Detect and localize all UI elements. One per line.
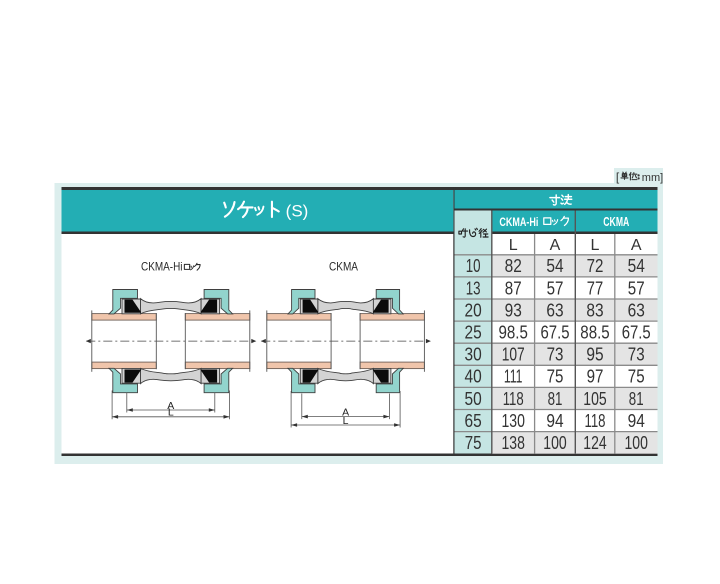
svg-text:72: 72 bbox=[587, 256, 604, 276]
svg-text:94: 94 bbox=[546, 411, 563, 431]
svg-text:124: 124 bbox=[583, 433, 606, 453]
svg-text:138: 138 bbox=[502, 433, 525, 453]
svg-text:CKMA-Hi: CKMA-Hi bbox=[499, 215, 538, 229]
svg-text:20: 20 bbox=[465, 300, 482, 320]
svg-text:73: 73 bbox=[628, 345, 645, 365]
svg-text:63: 63 bbox=[546, 300, 563, 320]
svg-text:88.5: 88.5 bbox=[580, 323, 609, 343]
svg-text:100: 100 bbox=[625, 433, 648, 453]
svg-text:65: 65 bbox=[465, 411, 482, 431]
svg-text:95: 95 bbox=[586, 345, 603, 365]
svg-text:87: 87 bbox=[505, 278, 522, 298]
svg-text:83: 83 bbox=[586, 300, 603, 320]
svg-text:63: 63 bbox=[628, 300, 645, 320]
svg-text:L: L bbox=[343, 415, 349, 427]
svg-text:CKMA: CKMA bbox=[603, 215, 629, 229]
svg-text:A: A bbox=[550, 237, 561, 254]
svg-text:57: 57 bbox=[628, 278, 645, 298]
svg-text:100: 100 bbox=[543, 433, 566, 453]
svg-text:75: 75 bbox=[628, 367, 645, 387]
svg-text:67.5: 67.5 bbox=[622, 323, 651, 343]
svg-text:81: 81 bbox=[548, 389, 563, 409]
svg-text:75: 75 bbox=[547, 367, 564, 387]
svg-text:130: 130 bbox=[502, 411, 525, 431]
svg-text:94: 94 bbox=[628, 411, 645, 431]
svg-text:57: 57 bbox=[547, 278, 564, 298]
svg-text:54: 54 bbox=[628, 256, 645, 276]
svg-text:54: 54 bbox=[546, 256, 563, 276]
svg-text:73: 73 bbox=[547, 345, 564, 365]
svg-text:105: 105 bbox=[583, 389, 606, 409]
svg-text:118: 118 bbox=[585, 411, 606, 431]
svg-text:13: 13 bbox=[466, 278, 481, 298]
svg-text:98.5: 98.5 bbox=[499, 323, 528, 343]
svg-text:10: 10 bbox=[466, 256, 481, 276]
svg-text:82: 82 bbox=[505, 256, 522, 276]
svg-text:A: A bbox=[631, 237, 642, 254]
svg-text:L: L bbox=[509, 237, 518, 254]
svg-text:77: 77 bbox=[587, 278, 603, 298]
svg-text:67.5: 67.5 bbox=[541, 323, 570, 343]
svg-text:75: 75 bbox=[465, 433, 482, 453]
svg-text:93: 93 bbox=[505, 300, 522, 320]
svg-text:L: L bbox=[591, 237, 600, 254]
svg-text:25: 25 bbox=[465, 323, 482, 343]
svg-text:(S): (S) bbox=[286, 201, 309, 220]
svg-text:L: L bbox=[168, 407, 174, 419]
svg-text:107: 107 bbox=[502, 345, 525, 365]
svg-text:111: 111 bbox=[504, 367, 523, 387]
svg-text:118: 118 bbox=[503, 389, 524, 409]
svg-text:97: 97 bbox=[587, 367, 604, 387]
svg-text:81: 81 bbox=[629, 389, 644, 409]
svg-text:CKMA: CKMA bbox=[329, 260, 358, 274]
svg-text:30: 30 bbox=[465, 345, 482, 365]
svg-text:50: 50 bbox=[465, 389, 482, 409]
svg-text:mm]: mm] bbox=[642, 172, 663, 184]
svg-text:CKMA-Hi: CKMA-Hi bbox=[141, 260, 183, 274]
svg-text:40: 40 bbox=[465, 367, 482, 387]
